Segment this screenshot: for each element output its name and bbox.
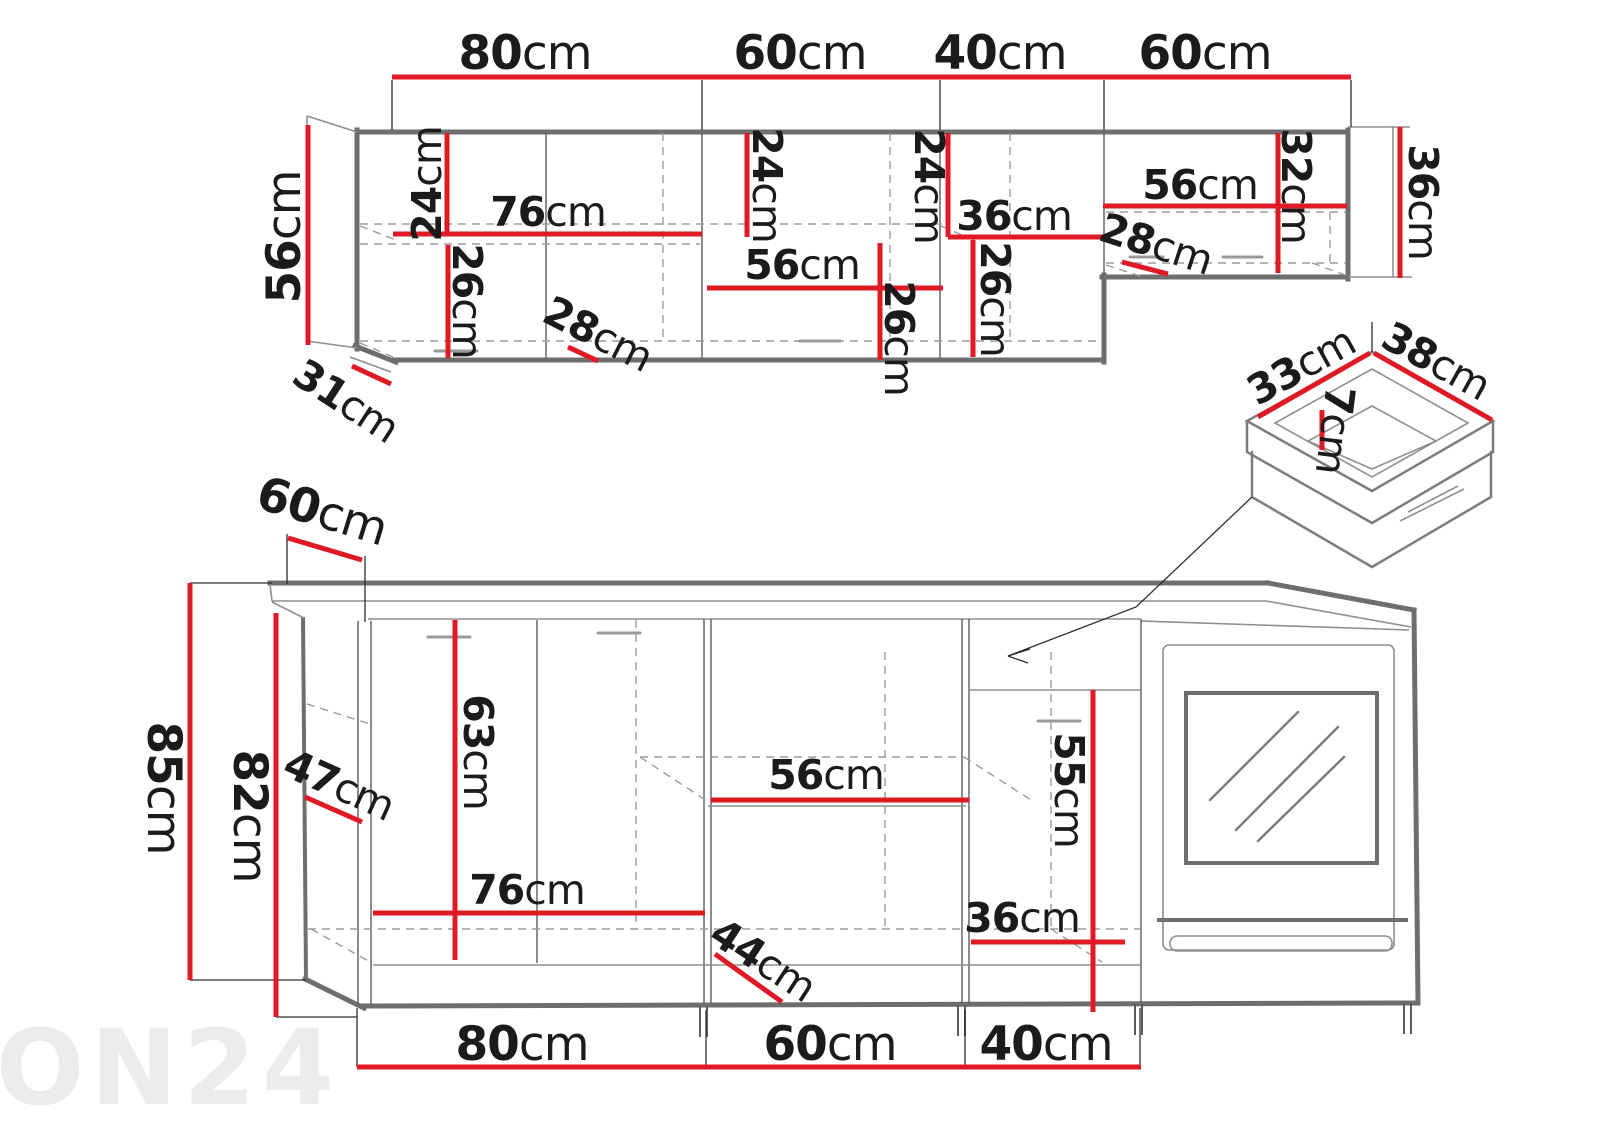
dim-lower-door-height-63: 63cm [454, 694, 502, 810]
oven-window [1186, 693, 1377, 863]
dim-upper-right-height-36: 36cm [1399, 144, 1447, 260]
dim-lower-total-height-85: 85cm [137, 721, 192, 854]
dim-upper-sec1-24: 24cm [403, 126, 451, 242]
dim-upper-left-height-56: 56cm [257, 170, 312, 303]
dim-lower-width-40: 40cm [979, 1017, 1112, 1072]
dim-lower-shelf-76: 76cm [469, 866, 585, 914]
dim-upper-shelf-76: 76cm [490, 188, 606, 236]
drawer-detail: 33cm 38cm 7cm [1008, 312, 1498, 663]
dim-lower-width-60: 60cm [763, 1017, 896, 1072]
dim-upper-shelf-56-mid: 56cm [744, 241, 860, 289]
dim-drawer-depth-38: 38cm [1374, 312, 1498, 410]
dim-lower-carcass-height-82: 82cm [223, 749, 278, 882]
dim-upper-sec3-24: 24cm [905, 128, 953, 244]
watermark-logo: ON24 [0, 1007, 340, 1129]
oven-bottom-drawer [1170, 936, 1392, 951]
dim-upper-sec4-32: 32cm [1272, 128, 1320, 244]
dim-lower-corner-front-47: 47cm [276, 740, 401, 831]
lower-cabinet-handle-marks [428, 633, 1080, 721]
dim-lower-shelf-56: 56cm [768, 751, 884, 799]
dim-upper-sec2-24: 24cm [743, 127, 791, 243]
dim-upper-width-60b: 60cm [1138, 26, 1271, 81]
dim-upper-left-depth-31: 31cm [284, 349, 407, 452]
dim-lower-front-44: 44cm [701, 908, 824, 1011]
kitchen-dimensions-diagram: ON24 [0, 0, 1600, 1145]
drawer-pointer-line [1008, 497, 1252, 656]
dim-upper-sec1-26: 26cm [443, 243, 491, 359]
dim-upper-width-40: 40cm [933, 26, 1066, 81]
dim-upper-sec2-26: 26cm [875, 280, 923, 396]
dim-upper-shelf-56-right: 56cm [1142, 161, 1258, 209]
upper-dimension-extension-lines [392, 80, 1351, 130]
dim-upper-shelf-36: 36cm [956, 192, 1072, 240]
dim-lower-width-36: 36cm [964, 894, 1080, 942]
dim-lower-width-80: 80cm [455, 1017, 588, 1072]
dim-upper-width-60: 60cm [733, 26, 866, 81]
oven-glass-shine [1210, 712, 1298, 800]
dim-lower-inner-height-55: 55cm [1045, 732, 1093, 848]
oven [1157, 645, 1408, 951]
dim-lower-counter-depth-60: 60cm [250, 465, 393, 556]
dim-upper-sec3-26: 26cm [971, 241, 1019, 357]
dim-upper-sec1-28: 28cm [536, 286, 661, 381]
diagram-canvas: ON24 [0, 0, 1600, 1145]
dim-drawer-height-7: 7cm [1306, 383, 1364, 476]
dim-upper-width-80: 80cm [458, 26, 591, 81]
